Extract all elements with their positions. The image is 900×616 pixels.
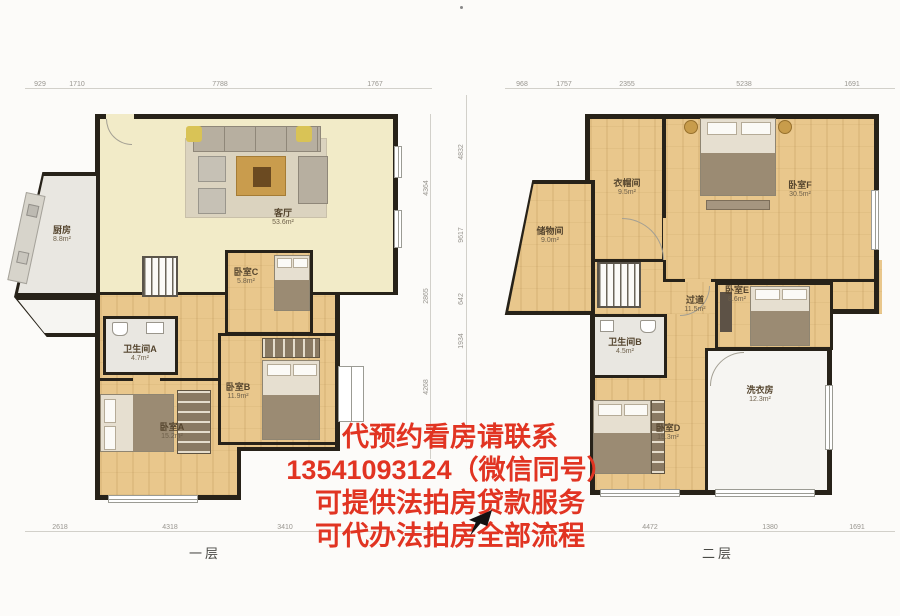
dimension-line (25, 88, 432, 89)
toilet-icon (112, 322, 128, 336)
plant-icon (186, 126, 202, 142)
dim-label: 4364 (423, 177, 430, 199)
dim-label: 2865 (423, 285, 430, 307)
table-decor-icon (253, 167, 271, 187)
wardrobe-icon (262, 338, 320, 358)
dimension-line (466, 95, 467, 450)
floor1-label: 一层 (189, 543, 221, 562)
room-label-living: 客厅 53.6m² (272, 208, 294, 228)
room-label-bedroom-a: 卧室A 15.2m² (160, 422, 185, 442)
dim-label: 1691 (846, 524, 868, 531)
dim-label: 5238 (733, 81, 755, 88)
window (108, 495, 198, 503)
dim-label: 968 (513, 81, 531, 88)
room-label-storage: 储物间 9.0m² (536, 226, 563, 246)
door-gap (685, 279, 711, 282)
dim-label: 1691 (841, 81, 863, 88)
window (394, 146, 402, 178)
watermark-line: 可代办法拍房全部流程 (285, 520, 615, 553)
dim-label: 7788 (209, 81, 231, 88)
room-label-hallway: 过道 11.5m² (684, 295, 705, 315)
wall-segment (160, 378, 218, 381)
dimension-line (505, 88, 895, 89)
bay-window (338, 366, 364, 422)
watermark-line: 13541093124（微信同号） (285, 454, 615, 487)
window (871, 190, 879, 250)
wall-segment (95, 378, 133, 381)
dim-label: 2355 (616, 81, 638, 88)
dim-label: 1710 (66, 81, 88, 88)
window (825, 385, 833, 450)
floor2-label: 二层 (702, 543, 734, 562)
kitchen-stove-icon (16, 251, 29, 265)
sink-icon (146, 322, 164, 334)
nightstand-icon (778, 120, 792, 134)
window (394, 210, 402, 248)
window (715, 489, 815, 497)
nightstand-icon (684, 120, 698, 134)
dim-label: 1934 (458, 330, 465, 352)
dimension-line (430, 114, 431, 459)
sink-icon (600, 320, 614, 332)
dim-label: 4268 (423, 376, 430, 398)
bed-icon (750, 286, 810, 346)
watermark-line: 代预约看房请联系 (285, 421, 615, 454)
watermark-line: 可提供法拍房贷款服务 (285, 487, 615, 520)
room-label-bedroom-e: 卧室E 8.6m² (725, 285, 749, 305)
side-unit (198, 188, 226, 214)
room-label-bedroom-b: 卧室B 11.9m² (226, 382, 251, 402)
stairs (142, 256, 178, 297)
side-unit (198, 156, 226, 182)
watermark-text: 代预约看房请联系 13541093124（微信同号） 可提供法拍房贷款服务 可代… (285, 421, 615, 553)
dim-label: 1380 (759, 524, 781, 531)
room-label-bedroom-d: 卧室D 15.3m² (656, 423, 681, 443)
room-label-bedroom-f: 卧室F 30.5m² (788, 180, 812, 200)
terrace (18, 300, 96, 333)
dot-artifact (460, 6, 463, 9)
dim-label: 1767 (364, 81, 386, 88)
room-label-bathroom-b: 卫生间B 4.5m² (608, 337, 642, 357)
room-label-cloakroom: 衣帽间 9.5m² (613, 178, 640, 198)
dim-label: 4832 (458, 141, 465, 163)
dim-label: 642 (458, 290, 465, 308)
room-label-laundry: 洗衣房 12.3m² (746, 385, 773, 405)
coffee-table (236, 156, 286, 196)
dim-label: 2618 (49, 524, 71, 531)
room-label-kitchen: 厨房 8.8m² (53, 225, 71, 245)
room-storage (504, 184, 591, 311)
stairs (597, 262, 641, 308)
dim-label: 929 (31, 81, 49, 88)
wall-segment (827, 309, 879, 314)
bench-icon (706, 200, 770, 210)
dim-label: 4318 (159, 524, 181, 531)
dim-label: 4472 (639, 524, 661, 531)
dim-label: 1757 (553, 81, 575, 88)
dim-label: 9617 (458, 224, 465, 246)
room-label-bathroom-a: 卫生间A 4.7m² (123, 344, 157, 364)
bed-icon (700, 118, 776, 196)
room-label-bedroom-c: 卧室C 5.8m² (234, 267, 259, 287)
toilet-icon (640, 320, 656, 333)
plant-icon (296, 126, 312, 142)
bed-icon (274, 255, 310, 311)
kitchen-sink-icon (26, 204, 39, 218)
armchair (298, 156, 328, 204)
